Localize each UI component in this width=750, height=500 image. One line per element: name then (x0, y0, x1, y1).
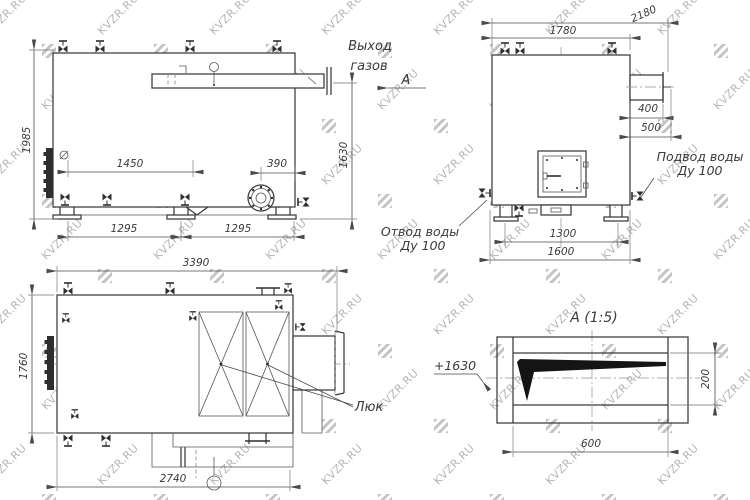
dim-1295-left-label: 1295 (111, 223, 138, 235)
valve-icon (102, 435, 111, 447)
dim-1630-label: 1630 (338, 141, 350, 168)
dim-400-label: 400 (638, 103, 658, 115)
dim-1780-label: 1780 (550, 25, 577, 37)
dim-500-label: 500 (641, 122, 661, 134)
boiler-body-plan (57, 295, 293, 433)
dim-1760-label: 1760 (18, 352, 30, 379)
gas-duct-plan (293, 331, 344, 433)
water-supply-label-line2: Ду 100 (677, 163, 723, 178)
water-return-label-line2: Ду 100 (400, 238, 446, 253)
dim-3390-label: 3390 (183, 257, 210, 269)
water-return-valve-icon (479, 189, 491, 198)
dim-200-label: 200 (700, 369, 712, 389)
bottom-flange-pair (245, 433, 270, 444)
elevation-label: +1630 (434, 358, 476, 373)
dim-1300-label: 1300 (550, 228, 577, 240)
dim-1295-right-label: 1295 (225, 223, 252, 235)
valve-icon (515, 205, 524, 217)
valve-icon (59, 41, 68, 53)
hatch-label: Люк (354, 400, 384, 415)
plan-view: 3390 1760 2740 Люк (18, 257, 383, 491)
gas-duct-end (626, 72, 674, 103)
dim-2740-label: 2740 (160, 473, 187, 485)
elevation-annotation: +1630 (434, 358, 483, 382)
gas-outlet-label-line2: газов (350, 59, 387, 74)
technical-drawing: 1985 1450 390 1630 1295 1295 (0, 0, 750, 500)
round-flange-icon (248, 185, 274, 211)
rear-elevation-view: 2180 1780 400 500 1300 1600 (381, 3, 744, 264)
valve-icon (284, 284, 292, 294)
dim-1985-label: 1985 (21, 126, 33, 153)
dim-1600-label: 1600 (548, 246, 575, 258)
valve-icon (64, 435, 73, 447)
section-arrow-a: А (388, 73, 426, 88)
dim-1450-label: 1450 (117, 158, 144, 170)
valve-icon (501, 43, 510, 55)
gas-outlet-label-line1: Выход (348, 39, 392, 54)
valve-icon (298, 198, 310, 207)
water-return-annotation: Отвод воды Ду 100 (381, 200, 487, 253)
valve-icon (96, 41, 105, 53)
dim-600-label: 600 (581, 438, 601, 450)
valve-icon (64, 283, 73, 295)
drawing-canvas: KVZR.RUKVZR.RUKVZR.RUKVZR.RUKVZR.RUKVZR.… (0, 0, 750, 500)
valve-icon (608, 43, 617, 55)
valve-icon (166, 283, 175, 295)
valve-icon (273, 41, 282, 53)
water-supply-annotation: Подвод воды Ду 100 (641, 149, 744, 197)
front-elevation-view: 1985 1450 390 1630 1295 1295 (21, 39, 426, 241)
water-return-label-line1: Отвод воды (381, 224, 459, 239)
valve-icon (186, 41, 195, 53)
valve-icon (516, 43, 525, 55)
flanged-nozzle-icon (256, 288, 280, 295)
section-a-label: А (401, 73, 411, 88)
weld-wedge (517, 359, 666, 401)
inspection-door (538, 151, 588, 197)
water-supply-label-line1: Подвод воды (657, 149, 744, 164)
valve-icon (296, 323, 306, 331)
dim-390-label: 390 (267, 158, 287, 170)
burner-flange-plan (45, 336, 55, 390)
detail-title: А (1:5) (569, 310, 617, 326)
detail-view-a: А (1:5) +1630 200 600 (434, 310, 721, 457)
dim-2180-label: 2180 (629, 3, 659, 25)
